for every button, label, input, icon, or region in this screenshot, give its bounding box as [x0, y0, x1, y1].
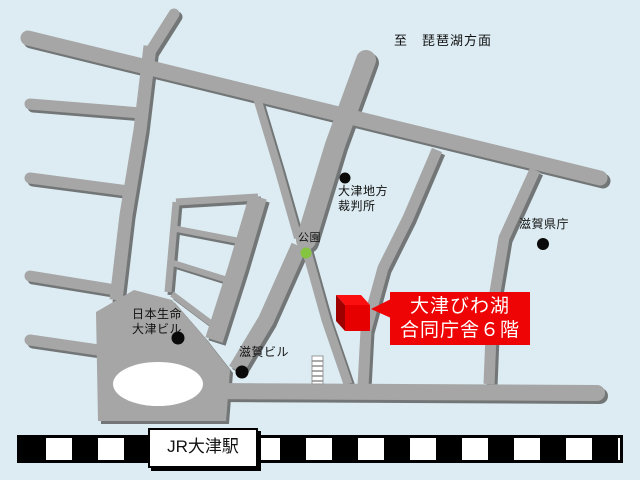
road-mesh-rung-2 — [170, 262, 234, 282]
destination-line1: 大津びわ湖 — [390, 295, 530, 319]
road-station-front — [212, 391, 597, 393]
destination-cube-icon — [336, 295, 370, 331]
poi-label-nippon-life: 日本生命 大津ビル — [132, 307, 182, 337]
poi-dot-park — [301, 248, 312, 259]
destination-line2: 合同庁舎６階 — [390, 319, 530, 343]
station-label: JR大津駅 — [148, 428, 258, 468]
direction-sign-biwako: 至 琵琶湖方面 — [394, 33, 492, 48]
poi-dot-shiga-building — [236, 366, 249, 379]
destination-callout: 大津びわ湖 合同庁舎６階 — [390, 292, 530, 345]
poi-dot-courthouse — [340, 173, 351, 184]
poi-dot-prefectural-office — [537, 238, 549, 250]
stairs — [312, 356, 323, 384]
road-east-branch-2 — [489, 170, 535, 384]
road-branch-top — [150, 14, 174, 52]
road-stub-2 — [30, 178, 129, 191]
road-mesh-top — [176, 197, 258, 202]
poi-label-shiga-building: 滋賀ビル — [239, 345, 289, 360]
poi-label-courthouse: 大津地方 裁判所 — [338, 184, 388, 214]
railway-track — [17, 435, 623, 463]
route-map: JR大津駅 至 琵琶湖方面 大津地方 裁判所 滋賀県庁 公園 日本生命 大津ビル… — [0, 0, 640, 480]
road-west-vertical — [116, 46, 150, 300]
road-narrow-center — [257, 98, 298, 238]
road-mid-diagonal — [214, 197, 258, 340]
road-mesh-left — [168, 202, 176, 292]
road-stub-3 — [30, 276, 116, 290]
road-stub-1 — [30, 104, 141, 113]
poi-label-prefectural-office: 滋賀県庁 — [519, 217, 569, 232]
station-rotary — [113, 362, 203, 406]
poi-label-park: 公園 — [298, 231, 321, 246]
